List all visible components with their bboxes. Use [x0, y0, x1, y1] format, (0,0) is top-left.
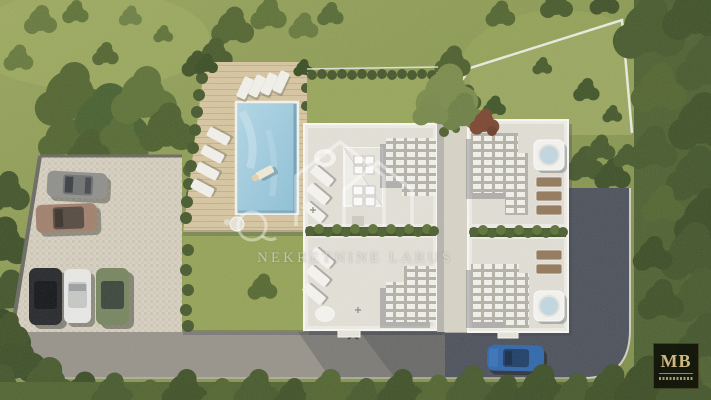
- texture-grain: [0, 0, 711, 400]
- logo-divider-line: [659, 373, 693, 374]
- render-studio-logo: MB: [653, 343, 699, 389]
- aerial-render-image: NEKRETNINE LARUS MB: [0, 0, 711, 400]
- logo-monogram-text: MB: [661, 352, 692, 370]
- logo-caption-illegible: [659, 377, 693, 380]
- scene-svg: [0, 0, 711, 400]
